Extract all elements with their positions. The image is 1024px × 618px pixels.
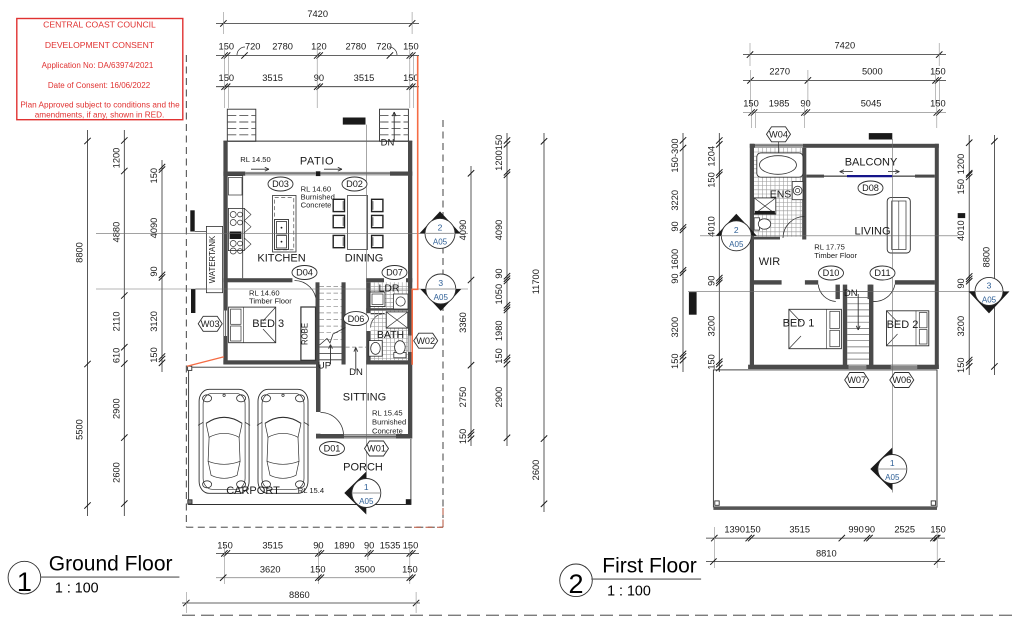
svg-text:A05: A05	[434, 293, 449, 302]
svg-text:2900: 2900	[111, 398, 121, 419]
svg-text:90: 90	[149, 266, 159, 276]
svg-text:1: 1	[17, 567, 32, 597]
svg-text:3515: 3515	[354, 73, 375, 83]
svg-text:150: 150	[402, 565, 418, 575]
svg-text:1 : 100: 1 : 100	[607, 584, 651, 600]
svg-text:W03: W03	[201, 319, 220, 329]
svg-text:D06: D06	[348, 314, 365, 324]
svg-text:2780: 2780	[345, 42, 366, 52]
svg-text:150: 150	[494, 135, 504, 151]
svg-text:BED 1: BED 1	[783, 318, 815, 330]
svg-text:4090: 4090	[149, 218, 159, 239]
svg-text:1200: 1200	[111, 148, 121, 169]
svg-text:3: 3	[438, 278, 443, 288]
svg-text:90: 90	[314, 73, 324, 83]
svg-text:D08: D08	[862, 183, 879, 193]
svg-text:150: 150	[706, 354, 716, 370]
svg-text:150: 150	[670, 353, 680, 369]
svg-text:150: 150	[219, 42, 235, 52]
svg-text:3200: 3200	[706, 316, 716, 337]
svg-text:1204: 1204	[706, 146, 716, 167]
svg-text:150: 150	[956, 357, 966, 373]
svg-text:2900: 2900	[494, 387, 504, 408]
svg-text:150: 150	[745, 524, 761, 534]
svg-text:Concrete: Concrete	[301, 200, 332, 209]
svg-text:610: 610	[111, 348, 121, 364]
svg-text:150: 150	[743, 99, 759, 109]
svg-text:3200: 3200	[670, 317, 680, 338]
svg-text:5045: 5045	[861, 99, 882, 109]
svg-text:D02: D02	[346, 179, 363, 189]
svg-text:Ground Floor: Ground Floor	[49, 553, 173, 576]
svg-text:W02: W02	[416, 336, 435, 346]
svg-text:4010: 4010	[956, 220, 966, 241]
svg-text:ENS: ENS	[770, 189, 792, 201]
svg-text:150: 150	[930, 99, 946, 109]
svg-text:150: 150	[149, 168, 159, 184]
svg-text:2110: 2110	[111, 311, 121, 331]
svg-text:DN: DN	[381, 137, 395, 148]
svg-text:D11: D11	[874, 268, 890, 278]
svg-text:2: 2	[734, 225, 739, 235]
svg-text:8810: 8810	[816, 548, 837, 558]
svg-text:RL 14.50: RL 14.50	[240, 155, 271, 164]
svg-text:90: 90	[800, 99, 810, 109]
svg-text:150: 150	[494, 348, 504, 364]
svg-text:1600: 1600	[670, 249, 680, 270]
svg-text:CARPORT: CARPORT	[226, 485, 280, 497]
svg-text:3620: 3620	[260, 565, 281, 575]
svg-text:Application No: DA/63974/2021: Application No: DA/63974/2021	[42, 61, 154, 70]
svg-text:150: 150	[403, 73, 419, 83]
svg-text:8800: 8800	[75, 242, 85, 263]
svg-text:WIR: WIR	[759, 256, 780, 268]
svg-text:2780: 2780	[272, 42, 293, 52]
svg-text:A05: A05	[359, 497, 374, 506]
svg-text:120: 120	[311, 42, 327, 52]
svg-text:LDR: LDR	[378, 283, 399, 295]
svg-text:4010: 4010	[706, 216, 716, 237]
svg-text:3120: 3120	[149, 311, 159, 332]
svg-text:150: 150	[930, 524, 946, 534]
svg-text:CENTRAL COAST COUNCIL: CENTRAL COAST COUNCIL	[43, 19, 156, 29]
svg-text:2: 2	[568, 569, 583, 599]
svg-text:A05: A05	[982, 295, 997, 304]
svg-text:amendments, if any, shown in R: amendments, if any, shown in RED.	[35, 111, 165, 120]
svg-text:BATH: BATH	[377, 329, 404, 341]
svg-text:1985: 1985	[769, 99, 790, 109]
svg-text:2750: 2750	[458, 387, 468, 408]
svg-text:150: 150	[458, 429, 468, 445]
svg-text:2525: 2525	[894, 524, 915, 534]
svg-text:First Floor: First Floor	[602, 555, 697, 578]
svg-text:90: 90	[670, 221, 680, 231]
svg-text:SITTING: SITTING	[343, 392, 386, 404]
svg-text:1980: 1980	[494, 320, 504, 341]
svg-text:150: 150	[706, 172, 716, 188]
svg-text:D01: D01	[324, 444, 341, 454]
svg-text:Concrete: Concrete	[372, 427, 403, 436]
svg-text:Timber Floor: Timber Floor	[814, 251, 857, 260]
svg-text:90: 90	[706, 276, 716, 286]
svg-text:RL 15.45: RL 15.45	[372, 409, 403, 418]
svg-text:BED 3: BED 3	[252, 318, 284, 330]
svg-text:3220: 3220	[670, 190, 680, 211]
svg-text:A05: A05	[729, 240, 744, 249]
svg-text:90: 90	[670, 273, 680, 283]
svg-text:4880: 4880	[111, 222, 121, 243]
svg-text:1050: 1050	[494, 284, 504, 305]
svg-text:RL 15.4: RL 15.4	[298, 486, 324, 495]
svg-text:2: 2	[438, 222, 443, 232]
svg-text:PATIO: PATIO	[300, 156, 334, 168]
svg-text:2600: 2600	[111, 462, 121, 483]
svg-text:3515: 3515	[262, 73, 283, 83]
svg-text:150-300: 150-300	[670, 138, 680, 172]
svg-text:4090: 4090	[494, 220, 504, 241]
svg-text:1890: 1890	[334, 540, 355, 550]
svg-text:150: 150	[149, 347, 159, 363]
svg-text:W04: W04	[769, 130, 788, 140]
svg-text:3515: 3515	[789, 524, 810, 534]
svg-text:D04: D04	[296, 268, 313, 278]
svg-text:DEVELOPMENT CONSENT: DEVELOPMENT CONSENT	[45, 40, 155, 50]
svg-text:A05: A05	[433, 237, 448, 246]
svg-text:150: 150	[310, 565, 326, 575]
svg-text:W01: W01	[367, 444, 386, 454]
svg-text:Plan Approved subject to condi: Plan Approved subject to conditions and …	[20, 101, 180, 110]
svg-text:3500: 3500	[354, 565, 375, 575]
svg-text:DINING: DINING	[345, 253, 384, 265]
svg-text:150: 150	[930, 67, 946, 77]
svg-text:1390: 1390	[724, 524, 745, 534]
svg-text:D07: D07	[386, 268, 403, 278]
svg-text:1: 1	[890, 458, 895, 468]
svg-text:2270: 2270	[769, 67, 790, 77]
svg-text:90: 90	[494, 268, 504, 278]
svg-text:Date of Consent: 16/06/2022: Date of Consent: 16/06/2022	[48, 81, 151, 90]
svg-text:1 : 100: 1 : 100	[55, 581, 99, 597]
svg-text:A05: A05	[885, 473, 900, 482]
svg-text:BED 2: BED 2	[887, 319, 919, 331]
svg-text:11700: 11700	[531, 269, 541, 294]
svg-text:ROBE: ROBE	[301, 323, 310, 345]
svg-text:WATERTANK: WATERTANK	[208, 235, 217, 283]
svg-text:720: 720	[245, 42, 261, 52]
svg-text:8800: 8800	[981, 247, 991, 268]
svg-text:W06: W06	[892, 375, 911, 385]
svg-text:150: 150	[956, 179, 966, 195]
svg-text:D03: D03	[272, 179, 289, 189]
svg-text:1200: 1200	[956, 154, 966, 175]
svg-text:1535: 1535	[380, 540, 401, 550]
svg-text:8860: 8860	[289, 590, 310, 600]
svg-text:5500: 5500	[75, 419, 85, 440]
svg-text:PORCH: PORCH	[343, 462, 383, 474]
svg-text:990: 990	[848, 524, 864, 534]
svg-text:DN: DN	[349, 367, 363, 378]
svg-text:90: 90	[364, 540, 374, 550]
svg-text:3515: 3515	[262, 540, 283, 550]
svg-text:3360: 3360	[458, 312, 468, 333]
svg-text:150: 150	[217, 540, 233, 550]
svg-text:150: 150	[219, 73, 235, 83]
svg-text:90: 90	[956, 278, 966, 288]
svg-text:150: 150	[403, 540, 419, 550]
svg-text:720: 720	[376, 42, 392, 52]
svg-text:3200: 3200	[956, 316, 966, 337]
svg-text:7420: 7420	[834, 41, 855, 51]
svg-text:1: 1	[364, 482, 369, 492]
svg-text:90: 90	[865, 524, 875, 534]
svg-text:2600: 2600	[531, 460, 541, 481]
svg-text:Burnished: Burnished	[372, 418, 406, 427]
svg-text:LIVING: LIVING	[854, 226, 890, 238]
svg-text:3: 3	[987, 280, 992, 290]
svg-text:1200: 1200	[494, 150, 504, 171]
svg-text:4090: 4090	[458, 220, 468, 241]
svg-text:UP: UP	[318, 361, 331, 372]
svg-text:150: 150	[403, 42, 419, 52]
svg-text:W07: W07	[847, 375, 866, 385]
svg-text:BALCONY: BALCONY	[845, 157, 898, 169]
svg-text:7420: 7420	[307, 9, 328, 19]
svg-text:KITCHEN: KITCHEN	[257, 253, 305, 265]
svg-text:Timber Floor: Timber Floor	[249, 297, 292, 306]
svg-text:D10: D10	[823, 268, 840, 278]
svg-text:DN: DN	[844, 288, 858, 299]
svg-text:5000: 5000	[862, 67, 883, 77]
